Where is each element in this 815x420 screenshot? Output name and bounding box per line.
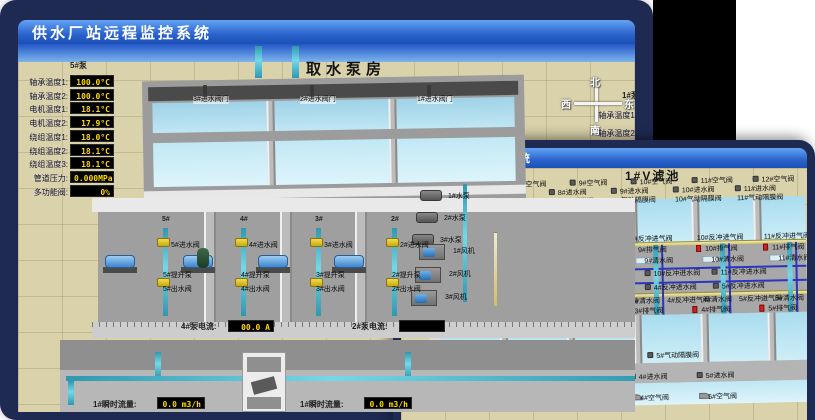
- air-valve-label: 9#空气阀: [579, 180, 608, 188]
- backwash-air-valve-label: 11#反冲进气阀: [764, 233, 807, 242]
- section-pump-label: 3#提升泵: [316, 272, 345, 280]
- backwash-water-valve-label-icon[interactable]: [713, 283, 719, 289]
- exhaust-valve-label: 4#排气阀: [701, 306, 730, 314]
- pump-section-header: 3#: [315, 216, 323, 224]
- pump-panel-label: 绕组温度1:: [22, 132, 68, 143]
- pump-panel-display: 17.9°C: [70, 116, 114, 128]
- exhaust-valve-label: 11#排气阀: [772, 244, 804, 252]
- gallery-valve-label: 4#清水阀: [703, 296, 732, 304]
- backwash-water-valve-label: 5#反冲进水阀: [722, 283, 765, 292]
- lift-pump-icon[interactable]: [105, 255, 135, 268]
- section-outlet-label: 2#出水阀: [392, 286, 421, 294]
- backwash-water-valve-label-icon[interactable]: [645, 284, 651, 290]
- pump2-current-label: 2#泵电流:: [352, 323, 388, 332]
- backwash-water-valve-label: 11#反冲进水阀: [721, 269, 767, 278]
- back-window-titlebar[interactable]: 供水厂站远程监控系统: [18, 20, 635, 44]
- pump-panel-label: 绕组温度3:: [22, 159, 68, 170]
- section-pump-label: 5#提升泵: [163, 272, 192, 280]
- clean-water-valve-label: 9#清水阀: [644, 258, 673, 266]
- basin-water-row2: [153, 137, 516, 187]
- air-valve-label: 11#空气阀: [701, 177, 733, 185]
- pump-section-header: 4#: [240, 216, 248, 224]
- gallery-valve-label: 3#清水阀: [631, 298, 660, 306]
- backwash-water-valve-label: 4#反冲进水阀: [654, 284, 697, 293]
- desktop: 供水厂站远程监控系统 取水泵房 北 西 南 东 5#泵 轴承温度1:100.0°…: [0, 0, 815, 420]
- basin-valve-label: 1#进水阀门: [417, 96, 453, 104]
- section-inlet-label: 2#进水阀: [400, 242, 429, 250]
- pump-panel-display: 18.0°C: [70, 130, 114, 142]
- cabinet-valve: [251, 376, 278, 395]
- basin-divider: [388, 99, 397, 129]
- diaphragm-valve-label-icon[interactable]: [647, 352, 653, 358]
- scene-title: 取水泵房: [306, 62, 386, 79]
- flow2-label: 1#瞬时流量:: [300, 401, 344, 410]
- section-inlet-label: 3#进水阀: [324, 242, 353, 250]
- blower-air-pipe: [494, 232, 497, 306]
- air-valve-label-icon[interactable]: [692, 177, 698, 183]
- intake-pipe: [292, 46, 299, 78]
- feed-pipe: [463, 184, 467, 302]
- flow1-display: 0.0 m3/h: [157, 397, 205, 409]
- compass-west: 西: [561, 96, 571, 111]
- backwash-air-valve-label: 10#反冲进气阀: [697, 234, 744, 243]
- blower-label: 1#风机: [453, 248, 475, 256]
- pump-panel-label: 电机温度1:: [22, 104, 68, 115]
- compass-ew-bar: [574, 102, 622, 105]
- flow1-label: 1#瞬时流量:: [93, 401, 137, 410]
- air-valve-label: 5#空气阀: [708, 393, 737, 401]
- black-backdrop: [653, 0, 736, 140]
- inlet-gate-icon[interactable]: [310, 85, 314, 95]
- exhaust-valve-label: 5#排气阀: [768, 305, 797, 313]
- back-window: 供水厂站远程监控系统 取水泵房 北 西 南 东 5#泵 轴承温度1:100.0°…: [0, 0, 653, 420]
- basin-divider: [267, 141, 276, 185]
- pump-panel-display: 18.1°C: [70, 157, 114, 169]
- exhaust-valve-label: 3#排气阀: [634, 308, 663, 316]
- inlet-valve-label: 8#进水阀: [558, 189, 587, 197]
- intake-pipe: [255, 46, 262, 78]
- compass-north: 北: [590, 74, 600, 89]
- inlet-valve-label-icon[interactable]: [549, 189, 555, 195]
- pump1-panel-label: 轴承温度2:: [591, 128, 635, 139]
- diaphragm-valve-label: 10#气动隔膜阀: [675, 196, 722, 205]
- cell-divider: [753, 197, 762, 243]
- section-pump-label: 4#提升泵: [241, 272, 270, 280]
- inlet-valve-label-icon[interactable]: [735, 185, 741, 191]
- basin-valve-label: 3#进水阀门: [193, 96, 229, 104]
- sky: [18, 44, 635, 62]
- cabinet-panel: [247, 397, 281, 409]
- lift-pump-icon[interactable]: [258, 255, 288, 268]
- inlet-valve-icon[interactable]: [235, 238, 248, 247]
- inlet-valve-label-icon[interactable]: [611, 188, 617, 194]
- section-outlet-label: 3#出水阀: [316, 286, 345, 294]
- inlet-valve-icon[interactable]: [310, 238, 323, 247]
- inlet-valve-label-icon[interactable]: [697, 372, 703, 378]
- water-pump-label: 1#水泵: [448, 193, 470, 201]
- backwash-water-valve-label-icon[interactable]: [645, 270, 651, 276]
- pump-room-roof-edge: [92, 198, 635, 212]
- water-pump-label: 3#水泵: [440, 237, 462, 245]
- pump-panel-display: 0%: [70, 185, 114, 197]
- inlet-gate-icon[interactable]: [203, 85, 207, 95]
- pump-panel-label: 管道压力:: [22, 173, 68, 184]
- clean-water-valve-label: 10#清水阀: [711, 256, 744, 264]
- air-valve-label-icon[interactable]: [570, 180, 576, 186]
- air-valve-label-icon[interactable]: [753, 176, 759, 182]
- exhaust-valve-label: 9#排气阀: [638, 247, 667, 255]
- backwash-water-valve-label-icon[interactable]: [711, 269, 717, 275]
- section-pump-label: 2#提升泵: [392, 272, 421, 280]
- pump-panel-header: 5#泵: [70, 62, 87, 71]
- pump-panel-display: 0.000MPa: [70, 171, 114, 183]
- flow2-display: 0.0 m3/h: [364, 397, 412, 409]
- pump1-panel-label: 轴承温度1:: [591, 110, 635, 121]
- pump-panel-label: 绕组温度2:: [22, 146, 68, 157]
- blower-label: 2#风机: [449, 271, 471, 279]
- inlet-valve-label: 5#进水阀: [706, 372, 735, 380]
- back-window-title: 供水厂站远程监控系统: [32, 22, 212, 43]
- air-valve-label: 12#空气阀: [762, 176, 795, 184]
- intake-basin: [142, 75, 526, 206]
- pump-panel-display: 18.1°C: [70, 144, 114, 156]
- pump-panel-label: 轴承温度2:: [22, 91, 68, 102]
- yard-pipe-riser: [405, 352, 411, 378]
- cabinet-panel: [247, 357, 281, 372]
- pump4-current-label: 4#泵电流:: [181, 323, 217, 332]
- clean-water-valve-label: 11#清水阀: [778, 255, 807, 263]
- blower-label: 3#风机: [445, 294, 467, 302]
- inlet-valve-icon[interactable]: [157, 238, 170, 247]
- air-valve-label: 4#空气阀: [640, 395, 669, 403]
- basin-divider: [389, 139, 398, 183]
- section-outlet-label: 5#出水阀: [163, 286, 192, 294]
- exhaust-valve-label: 10#排气阀: [705, 245, 738, 253]
- cell-divider: [700, 314, 709, 362]
- pump2-current-display: [399, 320, 445, 332]
- pump-panel-display: 18.1°C: [70, 102, 114, 114]
- diaphragm-valve-label: 11#气动隔膜阀: [737, 194, 783, 203]
- basin-divider: [266, 101, 275, 131]
- pump-panel-display: 100.0°C: [70, 89, 114, 101]
- inlet-valve-label: 10#进水阀: [682, 187, 715, 195]
- cell-divider: [767, 312, 776, 360]
- inlet-valve-icon[interactable]: [386, 238, 399, 247]
- lift-pump-icon[interactable]: [334, 255, 364, 268]
- section-outlet-label: 4#出水阀: [241, 286, 270, 294]
- basin-valve-label: 2#进水阀门: [300, 96, 336, 104]
- water-pump-icon[interactable]: [416, 212, 438, 223]
- pump-section-header: 2#: [391, 216, 399, 224]
- water-pump-label: 2#水泵: [444, 215, 466, 223]
- pump-panel-label: 电机温度2:: [22, 118, 68, 129]
- flow-meter-cabinet[interactable]: [242, 352, 286, 412]
- inlet-valve-label: 4#进水阀: [639, 374, 668, 382]
- exhaust-valve-label-icon[interactable]: [759, 305, 764, 312]
- yard-wall: [60, 340, 635, 370]
- exhaust-valve-label-icon[interactable]: [763, 244, 768, 251]
- inlet-gate-icon[interactable]: [427, 85, 431, 95]
- pump-panel-display: 100.0°C: [70, 75, 114, 87]
- backwash-air-valve-label: 9#反冲进气阀: [630, 236, 673, 245]
- backwash-water-valve-label: 10#反冲进水阀: [654, 270, 701, 279]
- yard-pipe-riser: [155, 352, 161, 378]
- inlet-valve-label-icon[interactable]: [673, 186, 679, 192]
- exhaust-valve-label-icon[interactable]: [692, 306, 697, 313]
- pump-panel-label: 多功能阀:: [22, 187, 68, 198]
- pump-panel-label: 轴承温度1:: [22, 77, 68, 88]
- inlet-valve-label: 11#进水阀: [744, 185, 776, 193]
- exhaust-valve-label-icon[interactable]: [696, 245, 701, 252]
- section-inlet-label: 4#进水阀: [249, 242, 278, 250]
- filter-scene-title: 1#V滤池: [625, 170, 680, 183]
- water-pump-icon[interactable]: [420, 190, 442, 201]
- tank-icon[interactable]: [197, 248, 209, 268]
- diaphragm-valve-label: 5#气动隔膜阀: [656, 352, 699, 361]
- yard-main-pipe: [66, 376, 635, 381]
- inlet-valve-label: 9#进水阀: [620, 188, 649, 196]
- pump-house-scene: 取水泵房 北 西 南 东 5#泵 轴承温度1:100.0°C轴承温度2:100.…: [18, 44, 635, 412]
- pump4-current-display: 00.0 A: [228, 320, 274, 332]
- gallery-valve-label: 5#清水阀: [775, 295, 804, 303]
- section-inlet-label: 5#进水阀: [171, 242, 200, 250]
- pump1-panel-header: 1#泵: [622, 92, 635, 101]
- yard-pipe-drop: [68, 381, 74, 405]
- pump-section-header: 5#: [162, 216, 170, 224]
